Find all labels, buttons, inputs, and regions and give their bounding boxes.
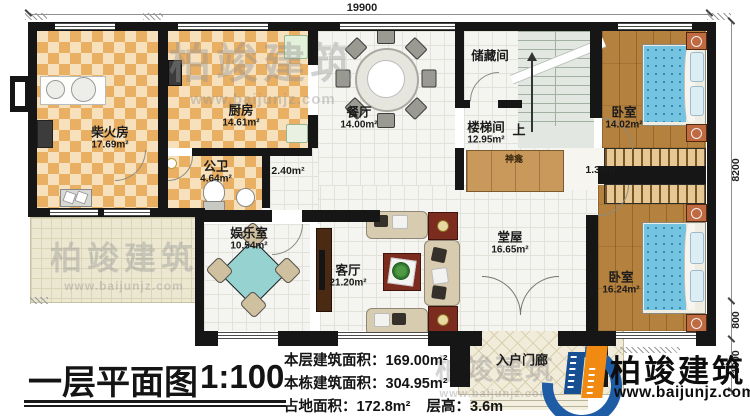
brand-website: www.baijunjz.com bbox=[614, 384, 750, 402]
window bbox=[338, 332, 428, 339]
window bbox=[618, 23, 692, 30]
pillow bbox=[690, 270, 704, 302]
floor-terrace bbox=[30, 217, 197, 303]
label-shrine: 神龛 bbox=[505, 154, 523, 164]
range-hob bbox=[168, 60, 182, 86]
dimension-right-value-8200: 8200 bbox=[730, 158, 742, 181]
room-label-dining: 餐厅 14.00m² bbox=[340, 105, 377, 130]
wall-storage-west bbox=[455, 31, 464, 102]
wall-shrine-west bbox=[455, 148, 464, 190]
wall-bath-corridor bbox=[262, 156, 270, 208]
wall-exterior-right bbox=[707, 22, 716, 346]
kitchen-appliance bbox=[286, 124, 308, 143]
area-label-passage: 1.30m² bbox=[585, 165, 618, 177]
nightstand bbox=[686, 314, 707, 332]
wall-south bbox=[278, 331, 338, 346]
wall-kitchen-dining bbox=[308, 31, 318, 65]
wok-burner bbox=[71, 77, 96, 102]
wall-gameroom-north bbox=[195, 210, 272, 222]
window bbox=[178, 23, 268, 30]
wall-south bbox=[195, 331, 218, 346]
room-label-bathroom: 公卫 4.64m² bbox=[200, 159, 232, 184]
lamp bbox=[437, 314, 449, 326]
window bbox=[50, 209, 98, 216]
potted-plant bbox=[392, 262, 410, 280]
fridge bbox=[284, 35, 308, 59]
wall-bedroom-bottom-west bbox=[586, 215, 598, 346]
room-label-storage: 储藏间 bbox=[471, 49, 509, 63]
sofa-cushion bbox=[431, 285, 447, 300]
porch-column bbox=[450, 337, 470, 387]
wall-storage-south bbox=[455, 100, 470, 108]
stair-up-label: 上 bbox=[512, 124, 525, 139]
brand-logo: 柏竣建筑 www.baijunjz.com bbox=[538, 338, 750, 416]
floor-corridor bbox=[270, 148, 318, 210]
wardrobe bbox=[604, 148, 706, 168]
wall-exterior-left bbox=[28, 22, 37, 217]
hatch-mark bbox=[30, 297, 48, 304]
pillow bbox=[690, 86, 704, 116]
wall-gameroom-west bbox=[195, 210, 204, 346]
area-label-corridor: 2.40m² bbox=[271, 166, 304, 178]
room-label-stairwell: 楼梯间 12.95m² bbox=[467, 120, 505, 145]
room-label-hall: 堂屋 16.65m² bbox=[491, 230, 528, 255]
window bbox=[55, 23, 115, 30]
pillow bbox=[690, 52, 704, 82]
room-label-gameroom: 娱乐室 10.54m² bbox=[230, 226, 268, 251]
page-title: 一层平面图 bbox=[28, 355, 198, 404]
stair-center-line bbox=[555, 31, 556, 126]
nightstand bbox=[686, 32, 707, 50]
dining-chair bbox=[422, 70, 437, 88]
window bbox=[340, 23, 455, 30]
stat-floor-area: 本层建筑面积：169.00m² bbox=[284, 349, 448, 370]
title-underline bbox=[24, 405, 286, 407]
sofa-cushion bbox=[392, 313, 406, 325]
tv-screen bbox=[319, 250, 325, 290]
chimney-flue bbox=[15, 82, 25, 106]
sofa-cushion bbox=[374, 313, 390, 327]
gas-stove bbox=[37, 120, 53, 148]
dining-chair bbox=[377, 29, 395, 44]
wok-burner bbox=[46, 80, 65, 99]
wall-kitchen-dining bbox=[308, 115, 318, 148]
room-label-firewood: 柴火房 17.69m² bbox=[91, 125, 129, 150]
bed-mattress bbox=[644, 224, 686, 310]
wall-living-north-stub bbox=[318, 210, 380, 222]
nightstand bbox=[686, 124, 707, 142]
bed-mattress bbox=[644, 46, 686, 122]
dining-table-top bbox=[367, 60, 405, 98]
sofa-cushion bbox=[431, 267, 449, 285]
dimension-top-value: 19900 bbox=[345, 2, 380, 14]
lamp bbox=[437, 220, 449, 232]
dimension-right-value-800: 800 bbox=[730, 311, 742, 329]
room-label-bedroom-top: 卧室 14.02m² bbox=[605, 105, 642, 130]
nightstand bbox=[686, 204, 707, 222]
stat-building-area: 本栋建筑面积：304.95m² bbox=[284, 372, 448, 393]
wash-basin bbox=[236, 188, 255, 207]
title-underline bbox=[24, 400, 286, 403]
room-label-kitchen: 厨房 14.61m² bbox=[222, 103, 259, 128]
wall-kitchen-south bbox=[192, 148, 312, 156]
floor-plan-canvas: 柴火房 17.69m² 厨房 14.61m² 餐厅 14.00m² 储藏间 楼梯… bbox=[0, 0, 750, 416]
window bbox=[218, 332, 278, 339]
sofa-cushion bbox=[392, 215, 408, 229]
wall-firewood-bath bbox=[158, 156, 168, 208]
sofa-cushion bbox=[431, 247, 448, 264]
room-label-living: 客厅 21.20m² bbox=[329, 263, 366, 288]
scale-label: 1:100 bbox=[200, 358, 284, 396]
wall-firewood-kitchen bbox=[158, 31, 168, 148]
dimension-line-top bbox=[30, 14, 712, 15]
window bbox=[104, 209, 150, 216]
dining-chair bbox=[377, 113, 395, 128]
stair-landing bbox=[518, 126, 594, 148]
stat-footprint-and-height: 占地面积：172.8m²层高：3.6m bbox=[284, 395, 503, 416]
room-label-bedroom-bottom: 卧室 16.24m² bbox=[602, 270, 639, 295]
stair-up-arrow bbox=[531, 60, 533, 132]
wall-kitchen-south bbox=[158, 148, 168, 156]
pillow bbox=[690, 232, 704, 264]
wall-bedroom-top-west bbox=[590, 22, 602, 118]
dining-chair bbox=[336, 70, 351, 88]
stair-up-arrowhead bbox=[527, 52, 537, 61]
floor-firewood-room bbox=[37, 31, 160, 208]
wall-storage-south bbox=[498, 100, 522, 108]
